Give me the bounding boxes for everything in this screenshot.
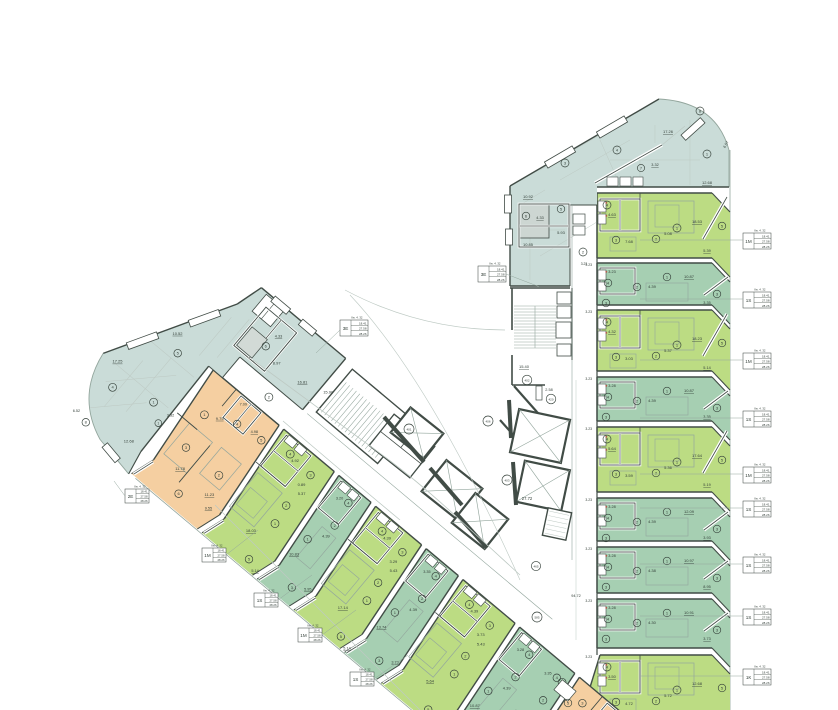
svg-text:28.26: 28.26: [366, 682, 373, 686]
svg-text:27.58: 27.58: [270, 598, 277, 602]
svg-text:16.81: 16.81: [297, 380, 308, 385]
svg-text:3.23: 3.23: [585, 599, 592, 603]
svg-text:27.58: 27.58: [762, 474, 770, 478]
svg-text:4.39: 4.39: [471, 609, 480, 614]
svg-text:8.95: 8.95: [703, 585, 710, 589]
svg-text:3.35: 3.35: [544, 671, 551, 675]
svg-text:27.58: 27.58: [762, 240, 770, 244]
svg-text:18.41: 18.41: [270, 594, 277, 598]
svg-text:18.41: 18.41: [762, 234, 770, 238]
svg-text:3.28: 3.28: [608, 554, 615, 558]
svg-text:28.26: 28.26: [270, 603, 277, 607]
svg-text:27.72: 27.72: [522, 496, 533, 501]
svg-text:1S: 1S: [746, 417, 752, 422]
svg-text:5.08: 5.08: [664, 231, 673, 236]
svg-text:10.87: 10.87: [684, 274, 695, 279]
svg-text:18.41: 18.41: [762, 670, 770, 674]
svg-text:5.95: 5.95: [304, 587, 311, 591]
svg-text:Кв. 4. 32: Кв. 4. 32: [308, 624, 319, 628]
svg-text:5.39: 5.39: [703, 249, 710, 253]
svg-text:Кв. 4. 32: Кв. 4. 32: [352, 316, 363, 320]
svg-text:4.38: 4.38: [648, 568, 657, 573]
svg-text:4.33: 4.33: [275, 334, 282, 338]
svg-text:18.41: 18.41: [762, 293, 770, 297]
svg-text:420: 420: [548, 397, 553, 401]
svg-text:4.30: 4.30: [648, 620, 657, 625]
svg-text:18.53: 18.53: [692, 219, 703, 224]
svg-text:465: 465: [533, 564, 538, 568]
svg-text:1К: 1К: [746, 675, 752, 680]
svg-text:18.41: 18.41: [762, 558, 770, 562]
svg-text:27.58: 27.58: [762, 616, 770, 620]
svg-text:3.23: 3.23: [585, 655, 592, 659]
svg-text:4.98: 4.98: [251, 430, 258, 434]
svg-text:28.26: 28.26: [218, 558, 225, 562]
svg-text:18.41: 18.41: [218, 549, 225, 553]
svg-text:27.58: 27.58: [366, 677, 373, 681]
svg-text:10.85: 10.85: [523, 242, 534, 247]
svg-text:5.14: 5.14: [703, 366, 710, 370]
svg-text:3.23: 3.23: [608, 270, 615, 274]
svg-text:3Е: 3Е: [343, 326, 349, 331]
svg-text:12.68: 12.68: [124, 439, 135, 444]
svg-text:1S: 1S: [257, 598, 263, 603]
svg-text:3.73: 3.73: [703, 637, 710, 641]
svg-text:10.97: 10.97: [684, 558, 695, 563]
svg-text:5.64: 5.64: [426, 679, 435, 684]
svg-text:401: 401: [406, 427, 411, 431]
svg-text:27.58: 27.58: [359, 327, 367, 331]
svg-text:28.26: 28.26: [762, 245, 770, 249]
svg-text:3.28: 3.28: [608, 505, 615, 509]
svg-text:3.32: 3.32: [167, 413, 174, 417]
svg-text:12.68: 12.68: [692, 681, 703, 686]
svg-text:17.64: 17.64: [692, 453, 703, 458]
svg-text:27.58: 27.58: [314, 633, 321, 637]
svg-text:27.58: 27.58: [762, 564, 770, 568]
svg-text:28.26: 28.26: [762, 681, 770, 685]
svg-text:18.41: 18.41: [762, 412, 770, 416]
svg-text:Кв. 4. 32: Кв. 4. 32: [490, 262, 501, 266]
svg-text:18.41: 18.41: [366, 673, 373, 677]
svg-text:5.36: 5.36: [664, 465, 673, 470]
svg-text:5.43: 5.43: [390, 568, 399, 573]
svg-text:3.28: 3.28: [517, 648, 524, 652]
svg-text:28.26: 28.26: [359, 332, 367, 336]
svg-text:27.58: 27.58: [762, 676, 770, 680]
svg-text:28.26: 28.26: [762, 304, 770, 308]
svg-text:3.28: 3.28: [608, 384, 615, 388]
svg-text:7.09: 7.09: [240, 403, 247, 407]
svg-text:12.68: 12.68: [702, 180, 713, 185]
svg-text:10.52: 10.52: [172, 331, 183, 336]
svg-text:3.03: 3.03: [625, 356, 634, 361]
svg-text:Кв. 4. 32: Кв. 4. 32: [755, 463, 766, 467]
svg-text:18.41: 18.41: [762, 502, 770, 506]
svg-text:Кв. 4. 32: Кв. 4. 32: [360, 668, 371, 672]
svg-text:15.40: 15.40: [519, 364, 530, 369]
svg-text:3.50: 3.50: [608, 674, 617, 679]
svg-text:5.19: 5.19: [703, 483, 710, 487]
svg-text:1S: 1S: [746, 298, 752, 303]
svg-text:11.23: 11.23: [205, 492, 215, 497]
svg-text:27.58: 27.58: [141, 494, 148, 498]
svg-text:18.41: 18.41: [762, 468, 770, 472]
svg-text:Кв. 4. 32: Кв. 4. 32: [755, 605, 766, 609]
svg-text:3.23: 3.23: [585, 377, 592, 381]
svg-text:3.29: 3.29: [390, 559, 399, 564]
svg-text:4.39: 4.39: [648, 284, 657, 289]
svg-text:Кв. 4. 32: Кв. 4. 32: [755, 288, 766, 292]
svg-text:1М: 1М: [745, 359, 752, 364]
svg-text:13.74: 13.74: [376, 625, 387, 630]
svg-text:3.59: 3.59: [625, 473, 634, 478]
svg-text:3.23: 3.23: [585, 498, 592, 502]
svg-text:28.26: 28.26: [762, 569, 770, 573]
svg-text:28.26: 28.26: [762, 365, 770, 369]
svg-text:28.26: 28.26: [762, 479, 770, 483]
svg-text:5.93: 5.93: [557, 230, 566, 235]
svg-text:28.26: 28.26: [762, 423, 770, 427]
svg-text:7.68: 7.68: [625, 239, 634, 244]
svg-text:Кв. 4. 32: Кв. 4. 32: [135, 485, 146, 489]
svg-text:4.39: 4.39: [383, 535, 392, 540]
svg-text:3.23: 3.23: [585, 427, 592, 431]
svg-text:3.32: 3.32: [651, 163, 658, 167]
svg-text:5.72: 5.72: [664, 693, 673, 698]
svg-text:18.41: 18.41: [762, 354, 770, 358]
svg-text:Кв. 4. 32: Кв. 4. 32: [755, 497, 766, 501]
svg-text:6.52: 6.52: [73, 409, 80, 413]
svg-text:9.75: 9.75: [216, 416, 225, 421]
svg-text:10.83: 10.83: [289, 551, 300, 556]
svg-text:4.39: 4.39: [322, 534, 331, 539]
svg-text:4.39: 4.39: [648, 398, 657, 403]
svg-text:402: 402: [524, 378, 529, 382]
svg-text:5.14: 5.14: [343, 646, 350, 650]
svg-text:5.43: 5.43: [477, 641, 486, 646]
svg-text:4.63: 4.63: [608, 212, 617, 217]
svg-text:Кв. 4. 32: Кв. 4. 32: [755, 553, 766, 557]
svg-text:9.55: 9.55: [205, 507, 212, 511]
svg-text:28.26: 28.26: [314, 638, 321, 642]
svg-text:1S: 1S: [746, 615, 752, 620]
svg-text:94.72: 94.72: [571, 594, 581, 598]
svg-text:3.35: 3.35: [423, 570, 430, 574]
svg-text:4.33: 4.33: [536, 216, 543, 220]
svg-text:5.14: 5.14: [251, 569, 258, 573]
svg-text:3.73: 3.73: [477, 632, 486, 637]
svg-text:2.58: 2.58: [545, 388, 552, 392]
svg-text:18.41: 18.41: [359, 321, 367, 325]
svg-text:10.91: 10.91: [684, 610, 695, 615]
svg-text:27.58: 27.58: [762, 418, 770, 422]
svg-text:28.26: 28.26: [762, 513, 770, 517]
svg-text:4.32: 4.32: [608, 329, 617, 334]
svg-text:406: 406: [485, 419, 490, 423]
svg-text:3.35: 3.35: [703, 415, 710, 419]
svg-text:15.90: 15.90: [323, 389, 334, 394]
svg-text:403: 403: [504, 478, 509, 482]
svg-text:1М: 1М: [204, 553, 211, 558]
svg-text:1М: 1М: [300, 633, 307, 638]
svg-text:4.39: 4.39: [503, 685, 512, 690]
svg-text:17.26: 17.26: [663, 129, 674, 134]
svg-text:8.97: 8.97: [273, 360, 282, 365]
svg-text:5.37: 5.37: [664, 348, 673, 353]
svg-text:Кв. 4. 32: Кв. 4. 32: [264, 589, 275, 593]
svg-text:585: 585: [534, 615, 539, 619]
svg-text:Кв. 4. 32: Кв. 4. 32: [755, 349, 766, 353]
svg-text:27.58: 27.58: [762, 299, 770, 303]
svg-text:18.41: 18.41: [762, 610, 770, 614]
svg-text:27.58: 27.58: [218, 553, 225, 557]
svg-text:17.25: 17.25: [112, 359, 123, 364]
svg-text:1М: 1М: [745, 239, 752, 244]
svg-text:2Е: 2Е: [128, 494, 134, 499]
svg-text:1М: 1М: [745, 473, 752, 478]
svg-text:10.87: 10.87: [684, 388, 695, 393]
svg-text:18.41: 18.41: [497, 267, 505, 271]
svg-text:Кв. 4. 32: Кв. 4. 32: [755, 229, 766, 233]
svg-text:3.23: 3.23: [585, 310, 592, 314]
svg-text:1S: 1S: [746, 563, 752, 568]
svg-text:1: 1: [157, 422, 159, 426]
svg-text:28.26: 28.26: [497, 278, 505, 282]
svg-text:10.92: 10.92: [523, 194, 534, 199]
svg-text:27.58: 27.58: [497, 273, 505, 277]
svg-text:11.78: 11.78: [175, 466, 185, 471]
svg-text:1S: 1S: [353, 677, 359, 682]
svg-text:4.72: 4.72: [625, 701, 634, 706]
svg-text:5.37: 5.37: [298, 491, 307, 496]
svg-text:28.26: 28.26: [762, 621, 770, 625]
svg-text:28.26: 28.26: [141, 499, 148, 503]
svg-text:Кв. 4. 32: Кв. 4. 32: [755, 407, 766, 411]
svg-text:4.39: 4.39: [648, 519, 657, 524]
svg-text:1S: 1S: [746, 507, 752, 512]
svg-text:7: 7: [640, 166, 642, 170]
svg-text:17.14: 17.14: [338, 605, 349, 610]
svg-text:3.28: 3.28: [608, 606, 615, 610]
svg-text:0.89: 0.89: [298, 482, 307, 487]
svg-text:3.93: 3.93: [703, 536, 710, 540]
svg-text:18.41: 18.41: [314, 629, 321, 633]
svg-text:4.39: 4.39: [409, 607, 418, 612]
svg-text:5.64: 5.64: [608, 446, 617, 451]
svg-text:12.09: 12.09: [684, 509, 695, 514]
svg-text:18.41: 18.41: [141, 490, 148, 494]
svg-text:27.58: 27.58: [762, 508, 770, 512]
svg-text:Кв. 4. 32: Кв. 4. 32: [755, 665, 766, 669]
svg-text:3.23: 3.23: [581, 262, 588, 266]
svg-text:4.92: 4.92: [291, 458, 300, 463]
svg-text:27.58: 27.58: [762, 360, 770, 364]
svg-text:3Е: 3Е: [481, 272, 487, 277]
svg-text:3.23: 3.23: [585, 547, 592, 551]
svg-text:10.87: 10.87: [470, 703, 481, 708]
svg-text:3.35: 3.35: [703, 301, 710, 305]
svg-text:3.20: 3.20: [336, 497, 343, 501]
svg-text:Кв. 4. 32: Кв. 4. 32: [212, 544, 223, 548]
svg-text:18.23: 18.23: [692, 336, 703, 341]
